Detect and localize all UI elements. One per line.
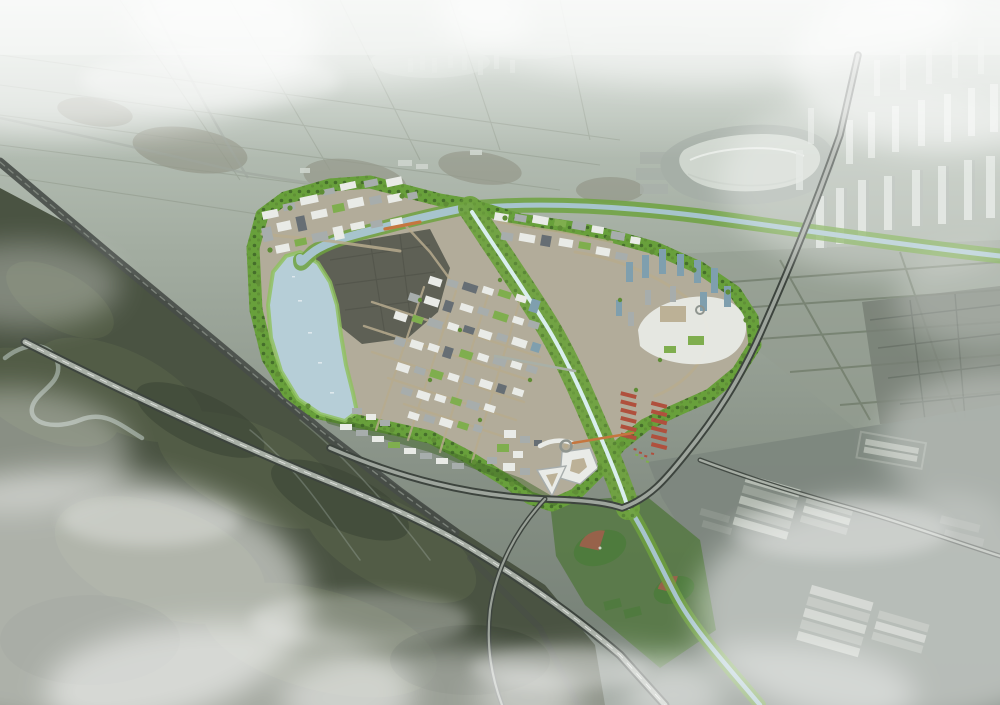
aerial-rendering bbox=[0, 0, 1000, 705]
aerial-rendering-viewport bbox=[0, 0, 1000, 705]
